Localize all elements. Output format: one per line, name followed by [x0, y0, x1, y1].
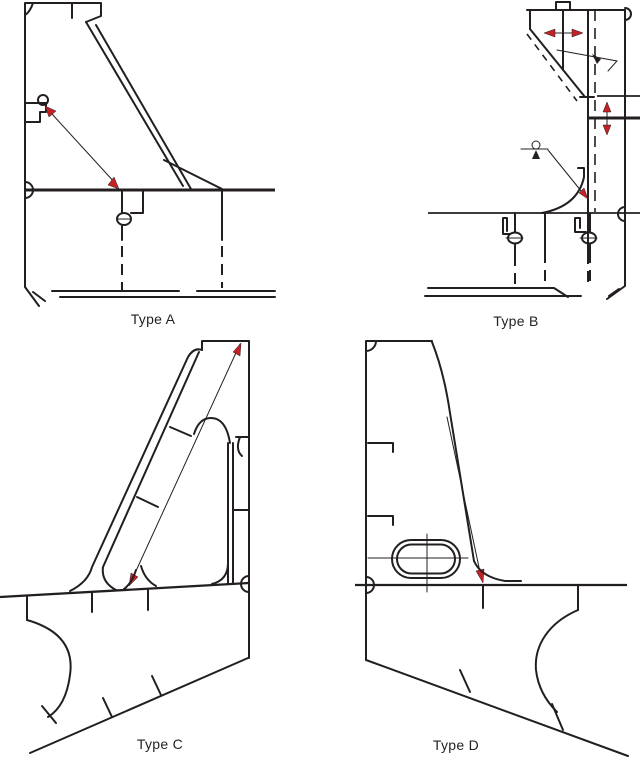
- type-b-crack-callout-eye: [532, 141, 540, 149]
- type-a-outline: [25, 3, 101, 287]
- figure-caption-type-c: Type C: [137, 736, 183, 752]
- type-a-drawing: [25, 3, 275, 306]
- type-b-underdeck-lug-right: [575, 218, 586, 232]
- type-d-manhole-inner: [397, 545, 455, 574]
- type-c-stiffener-hump: [194, 418, 230, 443]
- type-d-edge-stubs: [368, 443, 393, 525]
- type-d-sloped-edge: [432, 342, 474, 561]
- type-b-concave-bracket: [542, 168, 584, 213]
- type-c-edge-ticks: [233, 437, 249, 510]
- type-d-bottom-tick: [460, 670, 470, 692]
- type-a-underdeck-lug: [122, 190, 143, 213]
- type-c-stiffener-web: [212, 443, 233, 584]
- type-b-right-edge: [607, 8, 631, 299]
- type-d-fin-outline: [366, 341, 432, 660]
- type-c-deck-line: [0, 583, 249, 597]
- diagram-page: Type A Type B Type C Type D: [0, 0, 640, 757]
- type-d-underdeck-ticks: [483, 585, 578, 610]
- type-d-drawing: [355, 341, 628, 756]
- type-d-arc-end-tick: [552, 704, 563, 730]
- type-c-arc-end-tick: [42, 706, 56, 723]
- type-a-web-line: [122, 190, 222, 240]
- type-c-toe-flares: [124, 566, 156, 589]
- type-d-bottom-edge: [366, 660, 628, 756]
- type-c-dimension-arrow: [130, 344, 240, 584]
- diagram-canvas: [0, 0, 640, 757]
- type-b-bottom-edge: [425, 288, 581, 297]
- type-d-hull-cutout-arc: [536, 610, 578, 712]
- figure-caption-type-a: Type A: [131, 311, 176, 327]
- type-a-dimension-arrow: [52, 114, 116, 184]
- type-c-bracket-rungs: [137, 427, 191, 507]
- type-a-sloped-stiffener: [86, 22, 222, 189]
- red-arrowhead: [572, 29, 583, 37]
- type-c-bottom-ticks: [103, 676, 161, 717]
- type-b-leader-line: [548, 150, 586, 197]
- type-b-drawing: [425, 2, 640, 299]
- type-a-hidden-line: [122, 246, 222, 290]
- red-arrowhead: [108, 177, 119, 189]
- type-c-drawing: [0, 341, 249, 753]
- type-a-bottom-edge: [25, 287, 275, 306]
- type-b-underdeck-lug-left: [503, 218, 510, 234]
- type-b-bracket-hidden-edge: [527, 34, 577, 101]
- leader-arrowhead: [592, 54, 601, 64]
- red-arrowhead: [603, 125, 611, 135]
- figure-caption-type-b: Type B: [493, 313, 538, 329]
- type-d-manhole-outer: [392, 540, 460, 578]
- type-d-manhole-centerlines: [368, 534, 468, 592]
- type-c-hull-cutout-arc: [27, 620, 71, 717]
- figure-caption-type-d: Type D: [433, 737, 479, 753]
- type-c-fin-outline: [202, 341, 249, 658]
- red-arrowhead: [544, 29, 555, 37]
- red-arrowhead: [233, 343, 241, 356]
- callout-arrowhead: [532, 150, 540, 159]
- red-arrowhead: [603, 102, 611, 112]
